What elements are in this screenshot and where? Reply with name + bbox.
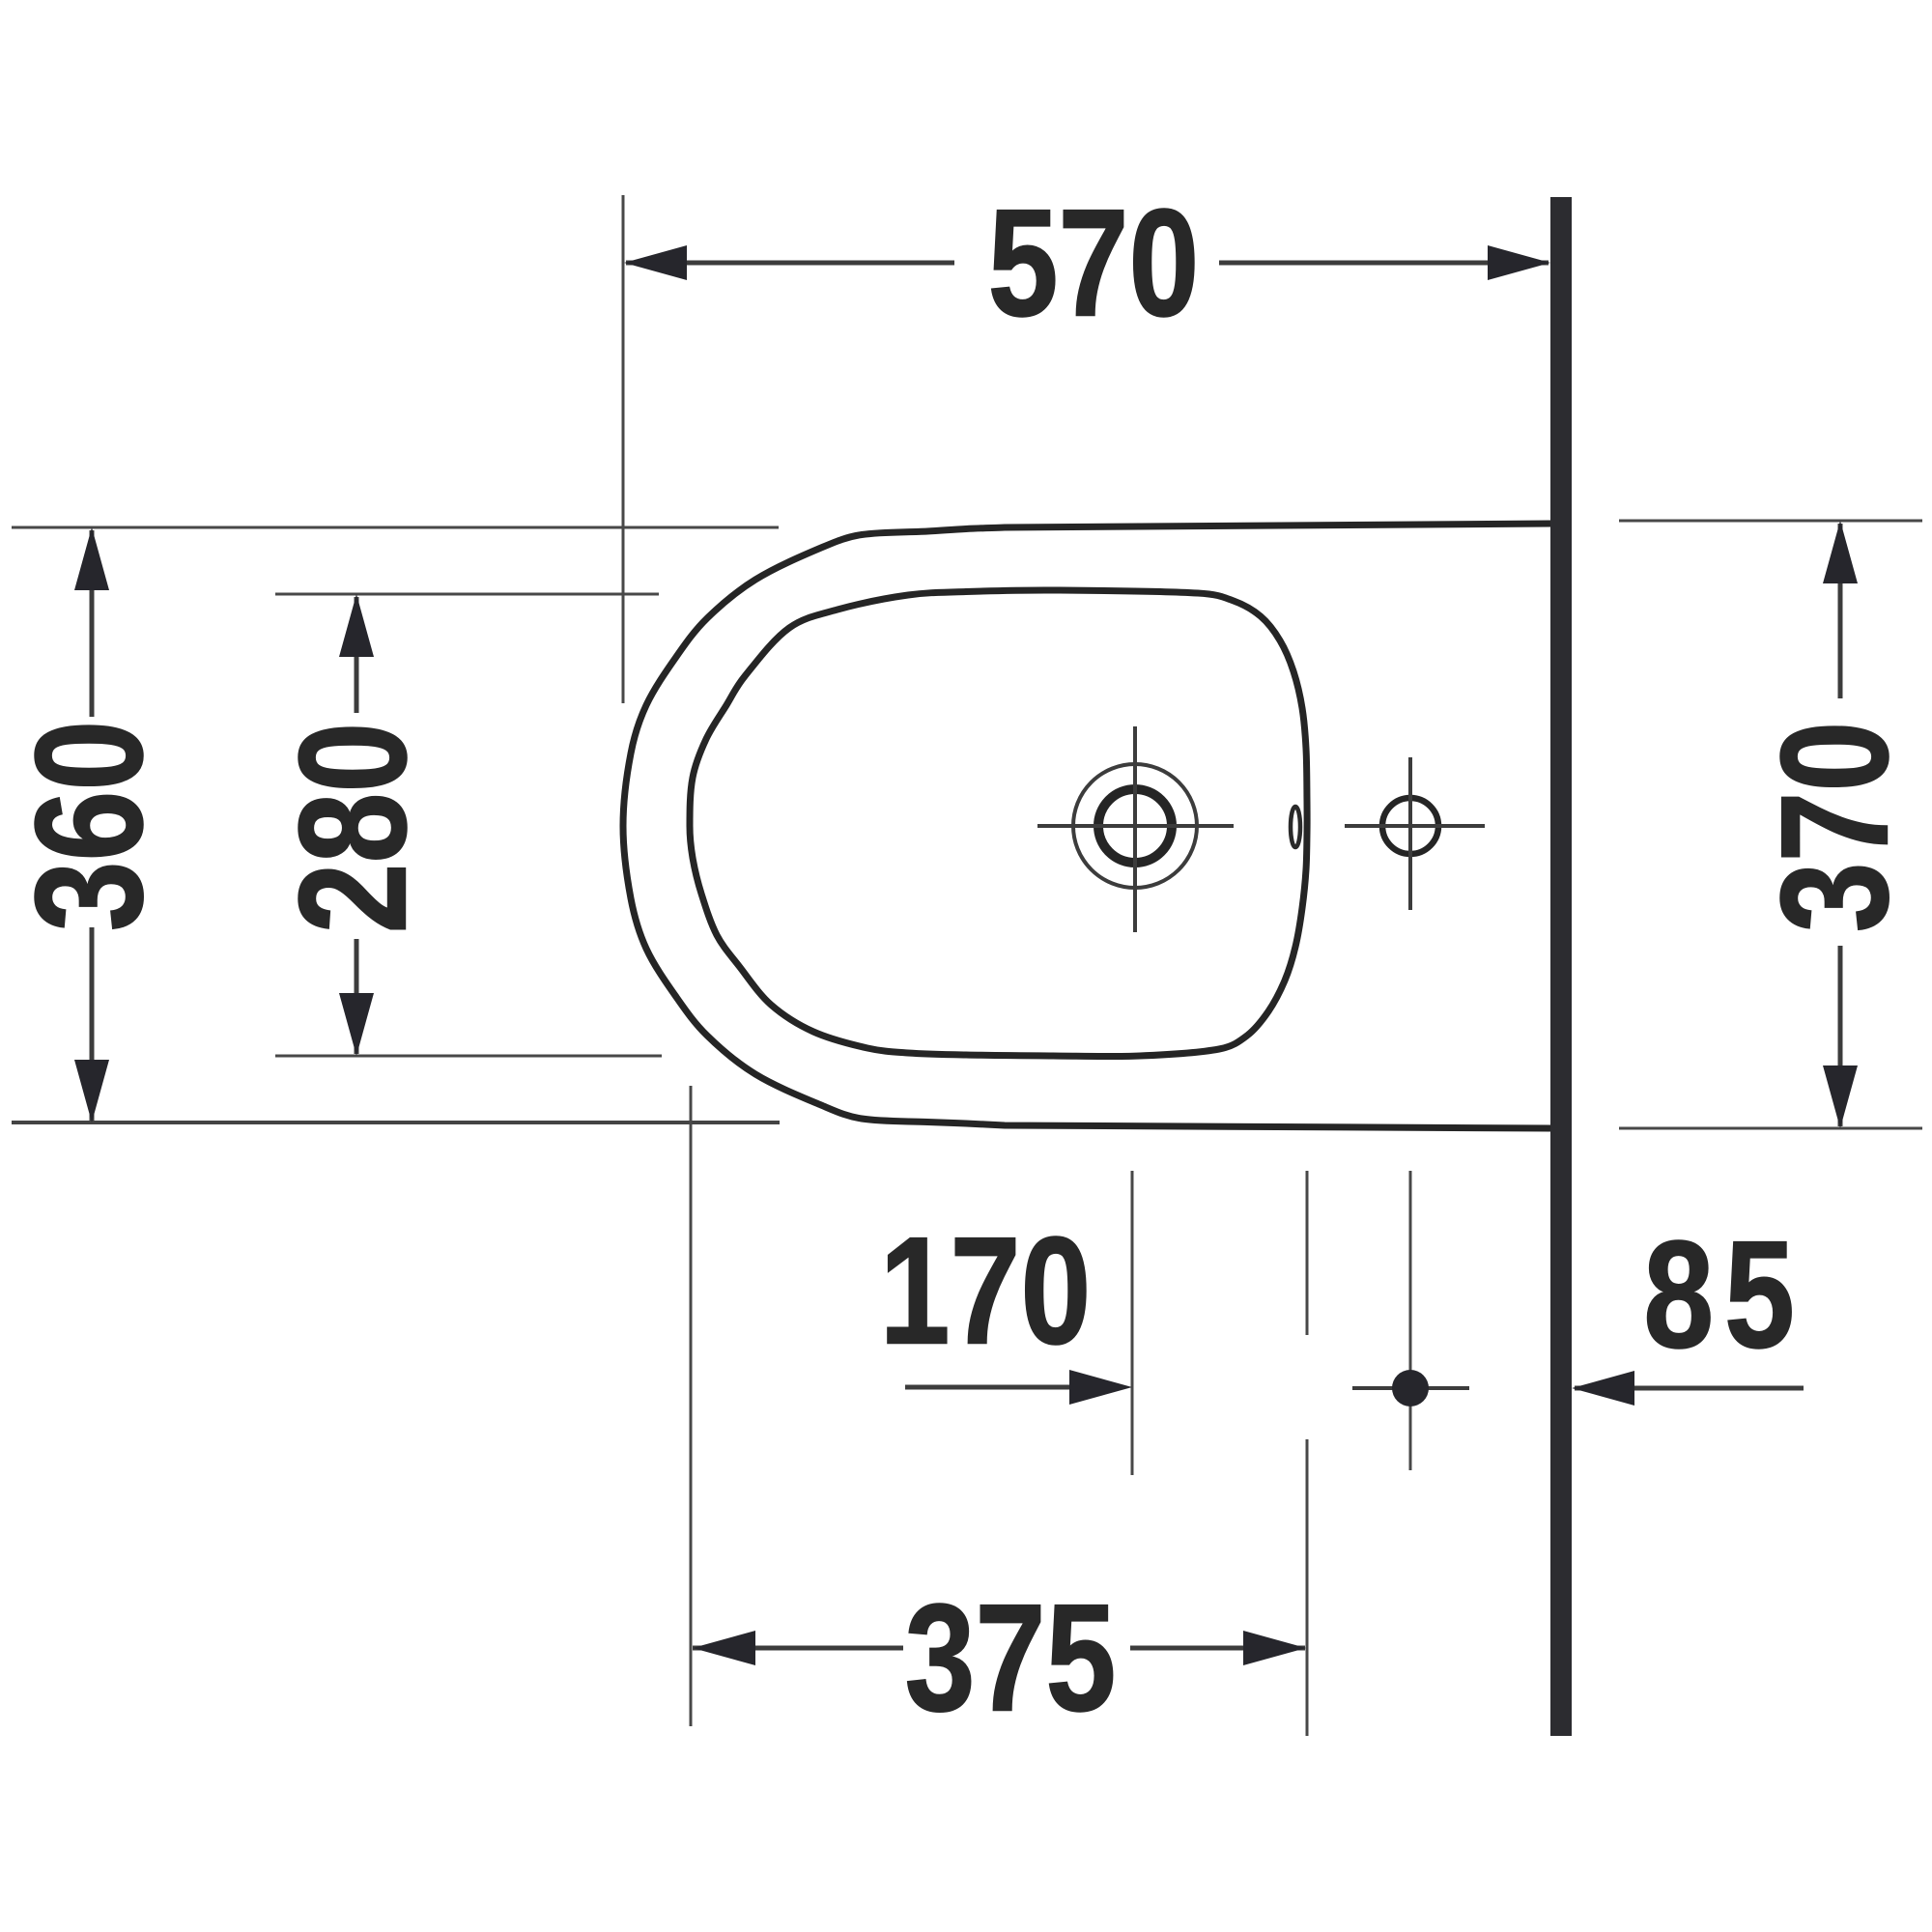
svg-text:375: 375 — [905, 1573, 1117, 1743]
svg-text:570: 570 — [988, 178, 1200, 348]
svg-text:360: 360 — [4, 721, 174, 932]
svg-text:85: 85 — [1643, 1209, 1804, 1379]
svg-text:170: 170 — [880, 1206, 1092, 1376]
svg-text:280: 280 — [268, 723, 438, 934]
svg-text:370: 370 — [1749, 722, 1919, 933]
